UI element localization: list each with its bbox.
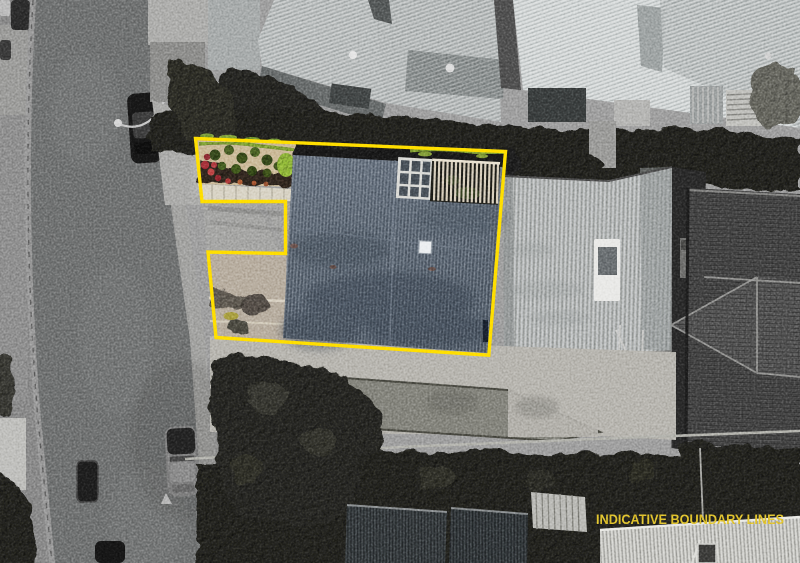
svg-text:INDICATIVE BOUNDARY LINES: INDICATIVE BOUNDARY LINES: [596, 512, 784, 528]
